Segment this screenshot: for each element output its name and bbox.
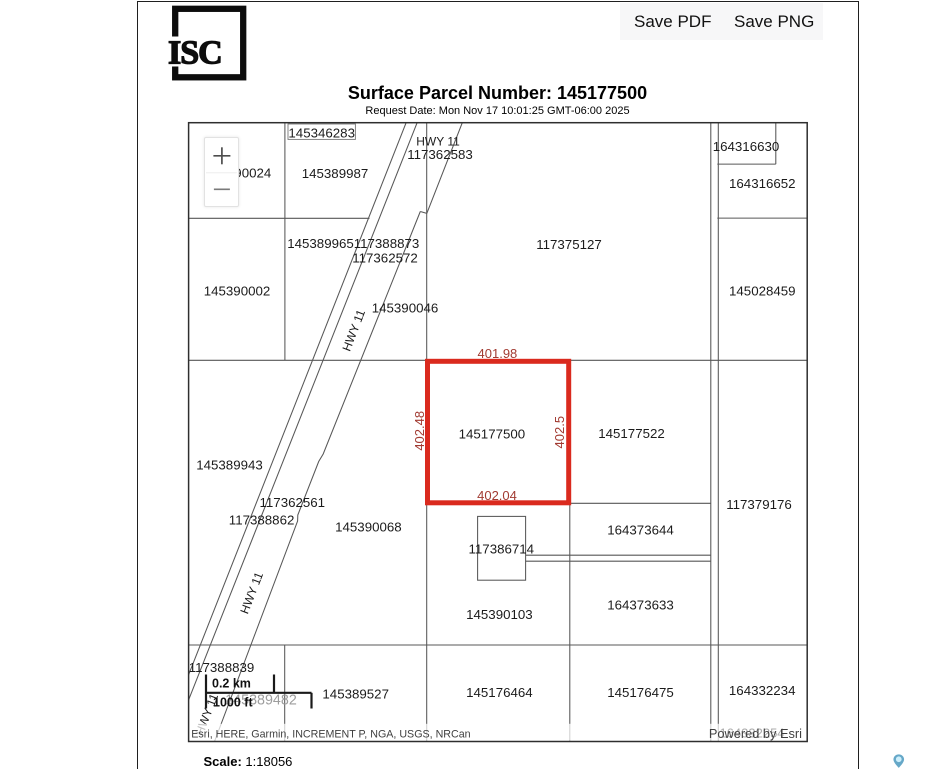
svg-text:402.04: 402.04 (477, 488, 517, 503)
svg-text:401.98: 401.98 (478, 346, 518, 361)
svg-text:145390002: 145390002 (204, 284, 271, 299)
svg-text:145176475: 145176475 (607, 685, 674, 700)
svg-text:117362561: 117362561 (260, 495, 326, 510)
svg-text:117388862: 117388862 (229, 513, 295, 528)
svg-text:145389965: 145389965 (287, 236, 354, 251)
svg-text:117388873: 117388873 (354, 236, 420, 251)
svg-text:Esri, HERE, Garmin, INCREMENT: Esri, HERE, Garmin, INCREMENT P, NGA, US… (191, 729, 470, 741)
svg-text:402.5: 402.5 (552, 416, 567, 449)
svg-text:117362572: 117362572 (352, 251, 418, 266)
svg-text:145177522: 145177522 (598, 426, 665, 441)
svg-text:117386714: 117386714 (469, 542, 535, 557)
svg-text:145389987: 145389987 (302, 166, 369, 181)
svg-text:145177500: 145177500 (459, 427, 526, 442)
svg-text:145346283: 145346283 (288, 126, 355, 141)
svg-text:164316652: 164316652 (729, 176, 796, 191)
svg-text:145390046: 145390046 (372, 300, 439, 315)
svg-text:402.48: 402.48 (412, 411, 427, 451)
svg-text:145176464: 145176464 (466, 685, 533, 700)
svg-text:Powered by Esri: Powered by Esri (709, 726, 802, 741)
svg-text:164373644: 164373644 (607, 523, 674, 538)
svg-text:HWY 11: HWY 11 (237, 570, 266, 616)
svg-text:145390068: 145390068 (335, 520, 402, 535)
svg-text:145028459: 145028459 (729, 284, 796, 299)
svg-text:164332234: 164332234 (729, 683, 796, 698)
svg-text:145389527: 145389527 (322, 686, 389, 701)
svg-text:145389943: 145389943 (196, 458, 263, 473)
svg-text:145390103: 145390103 (466, 607, 533, 622)
svg-text:1000 ft: 1000 ft (213, 695, 253, 709)
svg-text:164373633: 164373633 (607, 598, 674, 613)
svg-text:0.2 km: 0.2 km (212, 676, 251, 690)
svg-text:117375127: 117375127 (536, 237, 602, 252)
svg-text:117388839: 117388839 (189, 660, 255, 675)
svg-text:117379176: 117379176 (726, 497, 792, 512)
svg-text:164316630: 164316630 (713, 139, 780, 154)
svg-text:HWY 11: HWY 11 (339, 307, 368, 353)
svg-text:117362583: 117362583 (407, 147, 473, 162)
